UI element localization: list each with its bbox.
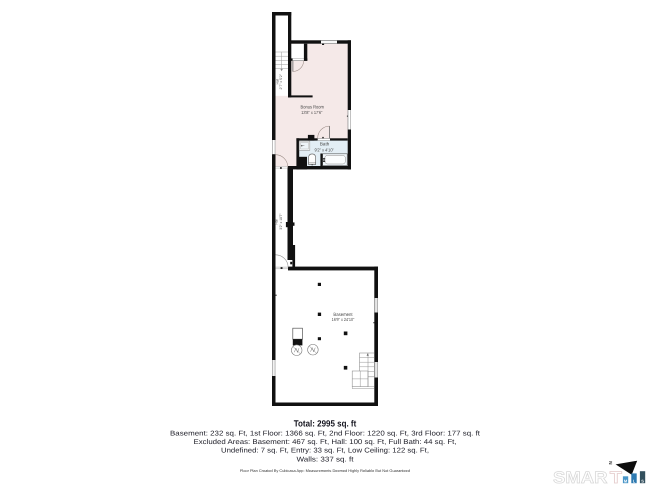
- svg-text:3'2" x 18'7": 3'2" x 18'7": [279, 213, 283, 230]
- svg-text:13'8" x 17'6": 13'8" x 17'6": [301, 110, 323, 115]
- svg-text:Walls: 337 sq. ft: Walls: 337 sq. ft: [297, 455, 354, 463]
- svg-text:T: T: [610, 469, 622, 487]
- svg-text:Undefined: 7 sq. Ft, Entry: 33: Undefined: 7 sq. Ft, Entry: 33 sq. Ft, L…: [221, 447, 429, 455]
- svg-text:Total: 2995 sq. ft: Total: 2995 sq. ft: [294, 418, 357, 428]
- svg-text:9'2" x 4'10": 9'2" x 4'10": [314, 148, 334, 153]
- svg-text:Basement: 232 sq. Ft, 1st Floo: Basement: 232 sq. Ft, 1st Floor: 1366 sq…: [170, 429, 480, 437]
- svg-text:2'7" x 5'2": 2'7" x 5'2": [279, 73, 283, 89]
- svg-text:Floor Plan Created By Cubicasa: Floor Plan Created By Cubicasa App: Meas…: [240, 469, 410, 473]
- svg-text:SMAR: SMAR: [553, 469, 608, 487]
- svg-text:16'9" x 24'10": 16'9" x 24'10": [332, 317, 355, 322]
- svg-text:S: S: [641, 478, 644, 483]
- svg-text:N: N: [608, 461, 613, 464]
- svg-text:Hall: Hall: [275, 219, 279, 225]
- svg-text:Excluded Areas: Basement: 467: Excluded Areas: Basement: 467 sq. Ft, Ha…: [194, 438, 457, 446]
